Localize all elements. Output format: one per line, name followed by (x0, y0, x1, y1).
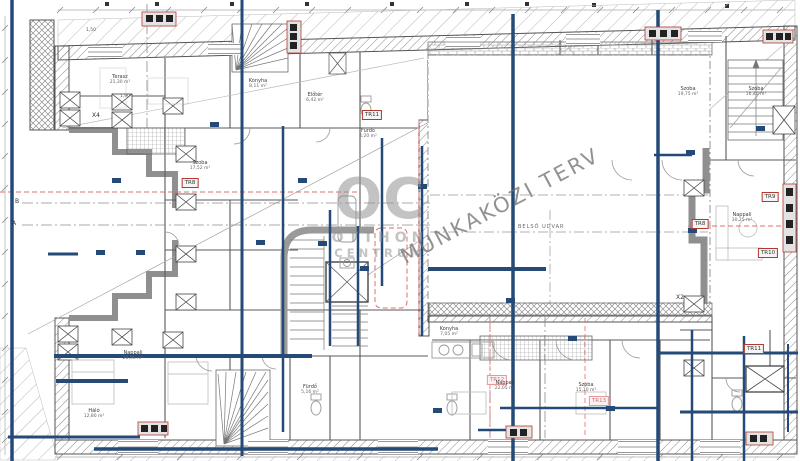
room-label: Szoba17,52 m² (190, 160, 211, 171)
room-label: Nappali30,25 m² (732, 212, 753, 223)
room-label: Előtér6,42 m² (306, 92, 324, 103)
room-label: Háló12,80 m² (84, 408, 105, 419)
structural-tag: TR9 (762, 192, 779, 202)
logo-line2: CENTRUM (330, 246, 430, 260)
dimension-text: 1,90 (120, 94, 130, 99)
structural-tag: TR11 (362, 110, 382, 120)
room-label: Fürdő4,20 m² (359, 128, 377, 139)
axis-label-a: A (12, 220, 16, 227)
room-label: Szoba16,40 m² (746, 86, 767, 97)
logo-line1: OTTHON (330, 230, 430, 246)
room-label: Nappali28,96 m² (123, 350, 144, 361)
structural-tag: TR11 (744, 344, 764, 354)
floorplan-page: MUNKAKÖZI TERV OC OTTHON CENTRUM BELSŐ U… (0, 0, 800, 461)
room-label: Szoba15,10 m² (576, 382, 597, 393)
room-label: Terasz21,30 m² (110, 74, 131, 85)
room-label: Nappali22,05 m² (495, 380, 516, 391)
courtyard-label: BELSŐ UDVAR (518, 224, 565, 230)
room-label: Konyha7,05 m² (440, 326, 458, 337)
logo-initials: OC (330, 170, 430, 230)
room-label: Szoba19,75 m² (678, 86, 699, 97)
watermark-logo: OC OTTHON CENTRUM (330, 170, 430, 260)
room-label: Konyha8,11 m² (249, 78, 267, 89)
room-label: Fürdő5,16 m² (301, 384, 319, 395)
axis-label-x4: X4 (92, 112, 100, 119)
dimension-text: 1,50 (86, 28, 96, 33)
structural-tag: TR8 (692, 219, 709, 229)
axis-label-b: B (15, 198, 19, 205)
structural-tag: TR13 (589, 396, 609, 406)
axis-label-x2: X2 (676, 294, 684, 301)
structural-tag: TR8 (182, 178, 199, 188)
structural-tag: TR10 (758, 248, 778, 258)
